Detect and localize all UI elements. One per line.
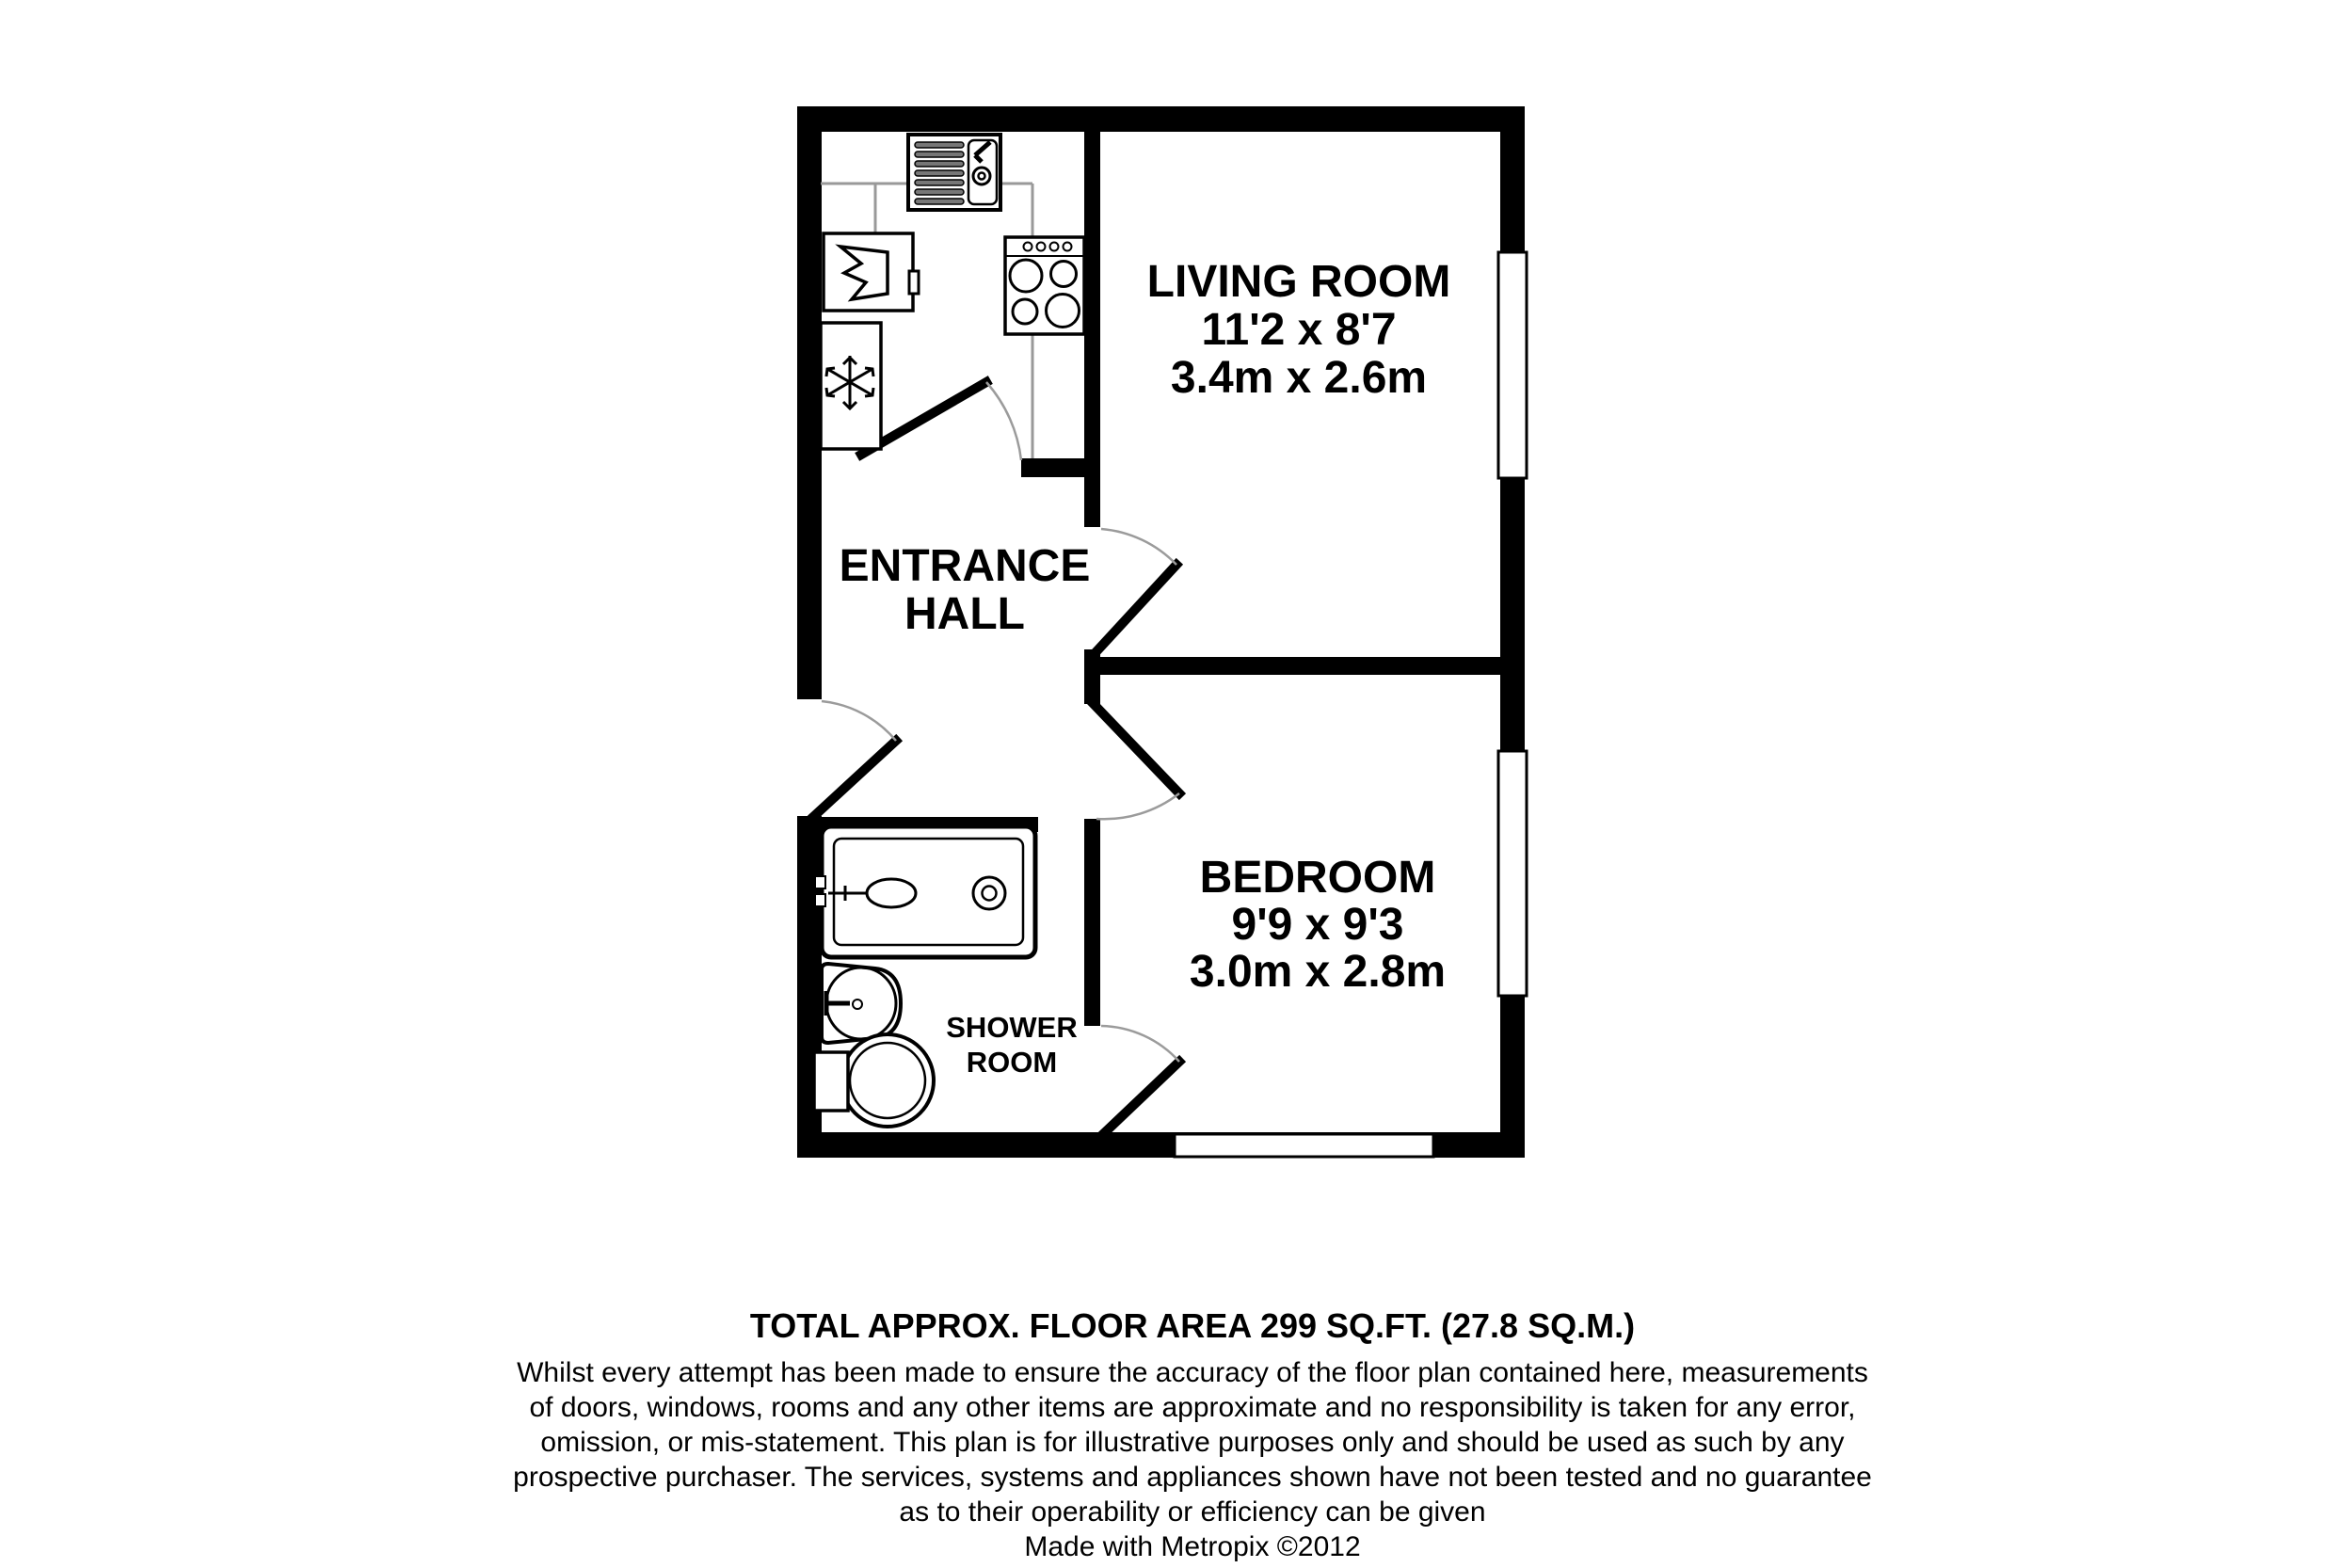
- disclaimer-line-5: as to their operability or efficiency ca…: [899, 1496, 1485, 1528]
- kitchen-door-arc: [986, 382, 1021, 460]
- living-room-label: LIVING ROOM: [1147, 257, 1451, 307]
- entrance-hall-label-line1: ENTRANCE: [840, 541, 1091, 591]
- appliance-icon: [824, 233, 919, 311]
- floor-plan: LIVING ROOM 11'2 x 8'7 3.4m x 2.6m ENTRA…: [0, 0, 2352, 1568]
- floor-plan-page: LIVING ROOM 11'2 x 8'7 3.4m x 2.6m ENTRA…: [0, 0, 2352, 1568]
- total-floor-area: TOTAL APPROX. FLOOR AREA 299 SQ.FT. (27.…: [750, 1306, 1635, 1345]
- shower-control-2: [815, 894, 825, 906]
- sink-drainer-icon: [908, 135, 1000, 210]
- wall-top: [797, 106, 1525, 132]
- bedroom-door-leaf: [1093, 703, 1179, 793]
- bedroom-size-metric: 3.0m x 2.8m: [1190, 947, 1446, 997]
- wash-basin-icon: [822, 964, 901, 1043]
- disclaimer-line-4: prospective purchaser. The services, sys…: [513, 1462, 1872, 1493]
- front-door-arc: [822, 701, 896, 741]
- shower-enclosure-icon: [815, 826, 1035, 957]
- toilet-cistern: [814, 1052, 848, 1111]
- front-door: [814, 701, 896, 816]
- living-room-window: [1498, 252, 1527, 478]
- sink-drainer-bars: [915, 142, 964, 204]
- kitchen-door: [861, 382, 1021, 460]
- bedroom-door-arc: [1096, 793, 1179, 819]
- shower-head: [867, 879, 916, 907]
- shower-room-label-line2: ROOM: [967, 1046, 1057, 1079]
- sink-drain-center: [979, 173, 985, 180]
- living-room-door-leaf: [1098, 565, 1176, 649]
- disclaimer-line-3: omission, or mis-statement. This plan is…: [540, 1427, 1844, 1458]
- living-room-size-imperial: 11'2 x 8'7: [1201, 305, 1396, 355]
- wall-living-bedroom: [1084, 657, 1500, 675]
- shower-drain-center: [983, 887, 997, 901]
- basin-plug: [853, 1000, 862, 1009]
- metropix-credit: Made with Metropix ©2012: [1024, 1531, 1360, 1562]
- shower-room-label-line1: SHOWER: [946, 1011, 1078, 1044]
- bedroom-side-window: [1498, 751, 1527, 996]
- living-room-door-arc: [1101, 529, 1176, 565]
- living-room-door: [1098, 529, 1176, 649]
- wall-shower-bedroom: [1084, 819, 1100, 1026]
- wall-kitchen-stub: [1021, 458, 1085, 477]
- living-room-size-metric: 3.4m x 2.6m: [1171, 353, 1427, 403]
- shower-room-door: [1101, 1026, 1179, 1134]
- toilet-bowl-outer: [841, 1034, 934, 1127]
- freezer-snowflake-icon: [821, 323, 881, 449]
- bedroom-bottom-window: [1175, 1134, 1433, 1157]
- shower-room-door-arc: [1101, 1026, 1179, 1062]
- disclaimer-line-2: of doors, windows, rooms and any other i…: [529, 1392, 1855, 1423]
- front-door-leaf: [814, 741, 896, 816]
- bedroom-door: [1093, 703, 1179, 819]
- bedroom-label: BEDROOM: [1200, 853, 1436, 903]
- wall-left-upper: [797, 106, 822, 699]
- bedroom-size-imperial: 9'9 x 9'3: [1232, 900, 1404, 950]
- shower-control: [815, 876, 825, 888]
- hob-icon: [1005, 237, 1084, 334]
- toilet-icon: [814, 1034, 934, 1127]
- disclaimer-line-1: Whilst every attempt has been made to en…: [517, 1357, 1868, 1388]
- entrance-hall-label-line2: HALL: [904, 589, 1025, 639]
- footer: TOTAL APPROX. FLOOR AREA 299 SQ.FT. (27.…: [513, 1306, 1872, 1562]
- wall-divider-kitchen-living: [1084, 132, 1100, 527]
- shower-room-door-leaf: [1103, 1062, 1179, 1134]
- appliance-handle: [909, 271, 919, 294]
